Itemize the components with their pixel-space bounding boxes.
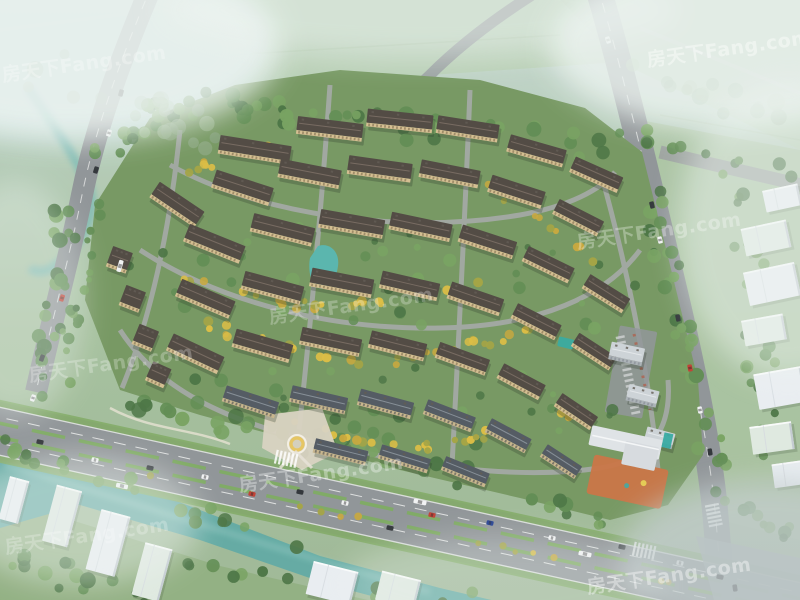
aerial-render-image: 房天下Fang.com 房天下Fang.com 房天下Fang.com 房天下F… xyxy=(0,0,800,600)
scene-svg: 房天下Fang.com 房天下Fang.com 房天下Fang.com 房天下F… xyxy=(0,0,800,600)
